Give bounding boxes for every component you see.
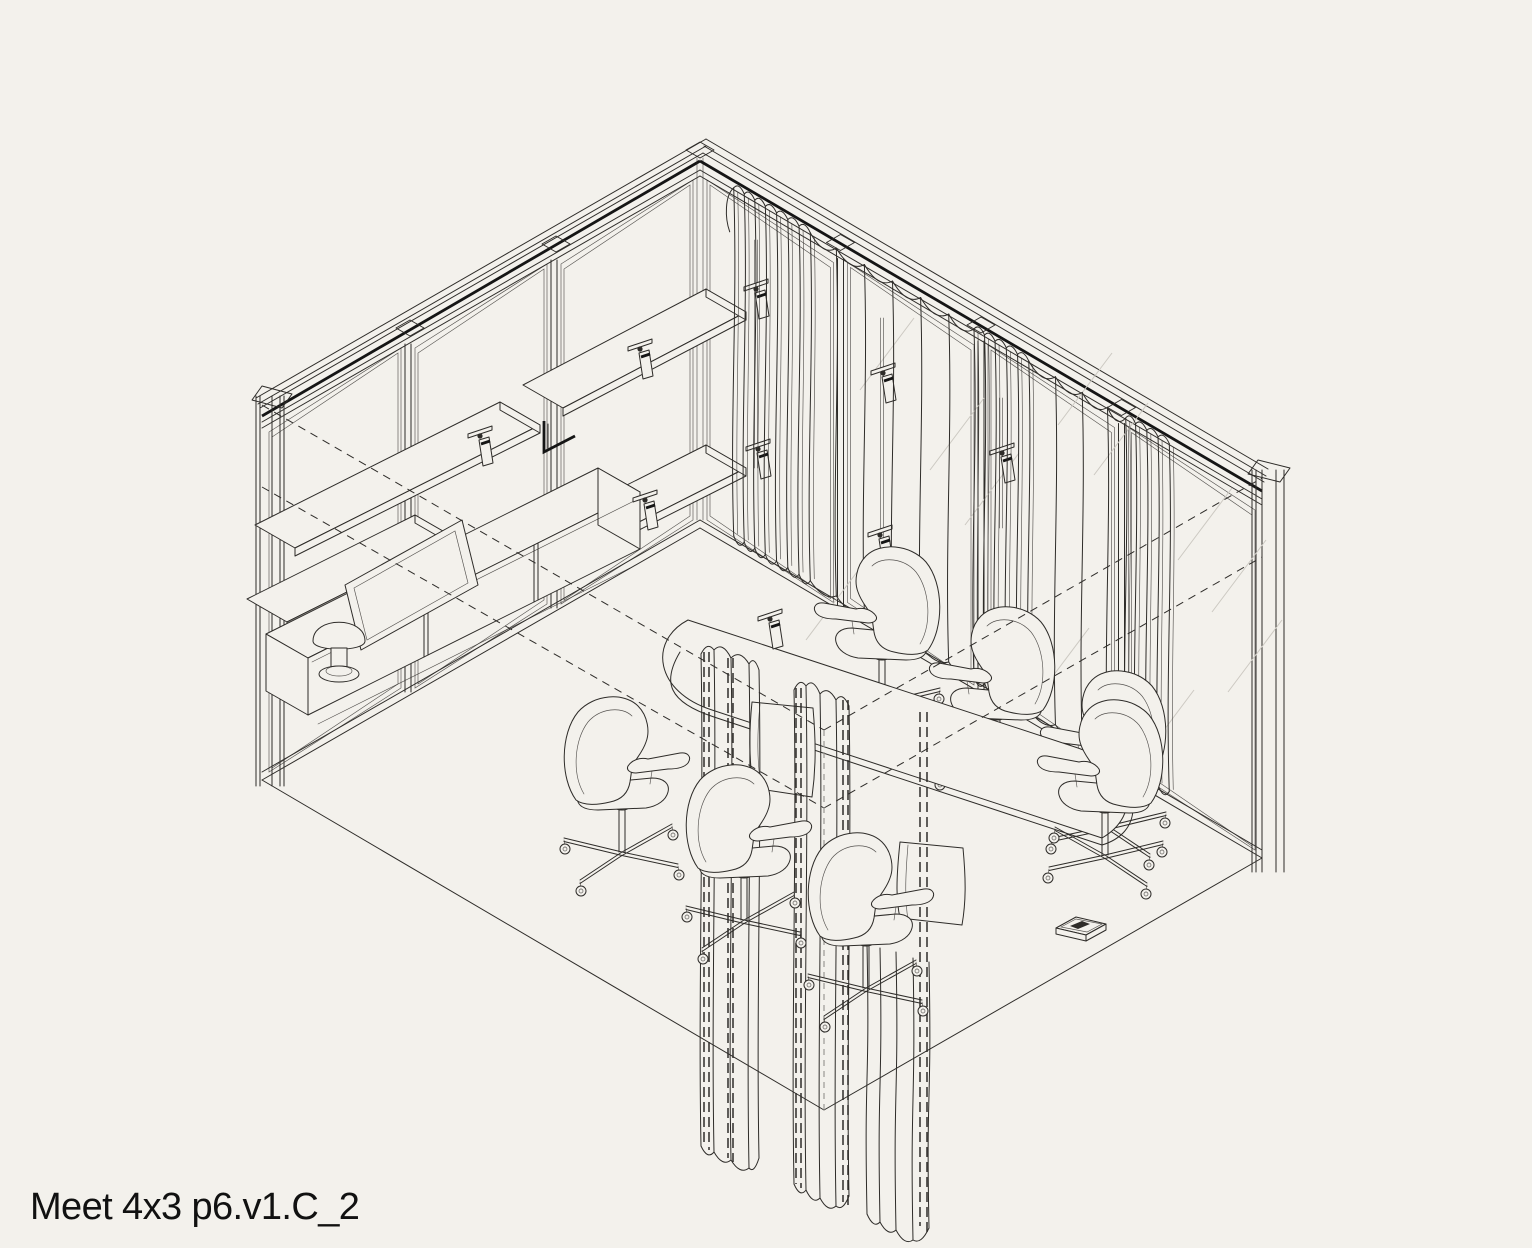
drawing-title: Meet 4x3 p6.v1.C_2 xyxy=(30,1186,359,1229)
table-spotlight xyxy=(758,609,783,649)
floor-outlet xyxy=(1056,917,1106,941)
isometric-room-drawing xyxy=(0,0,1532,1248)
canvas: Meet 4x3 p6.v1.C_2 xyxy=(0,0,1532,1248)
